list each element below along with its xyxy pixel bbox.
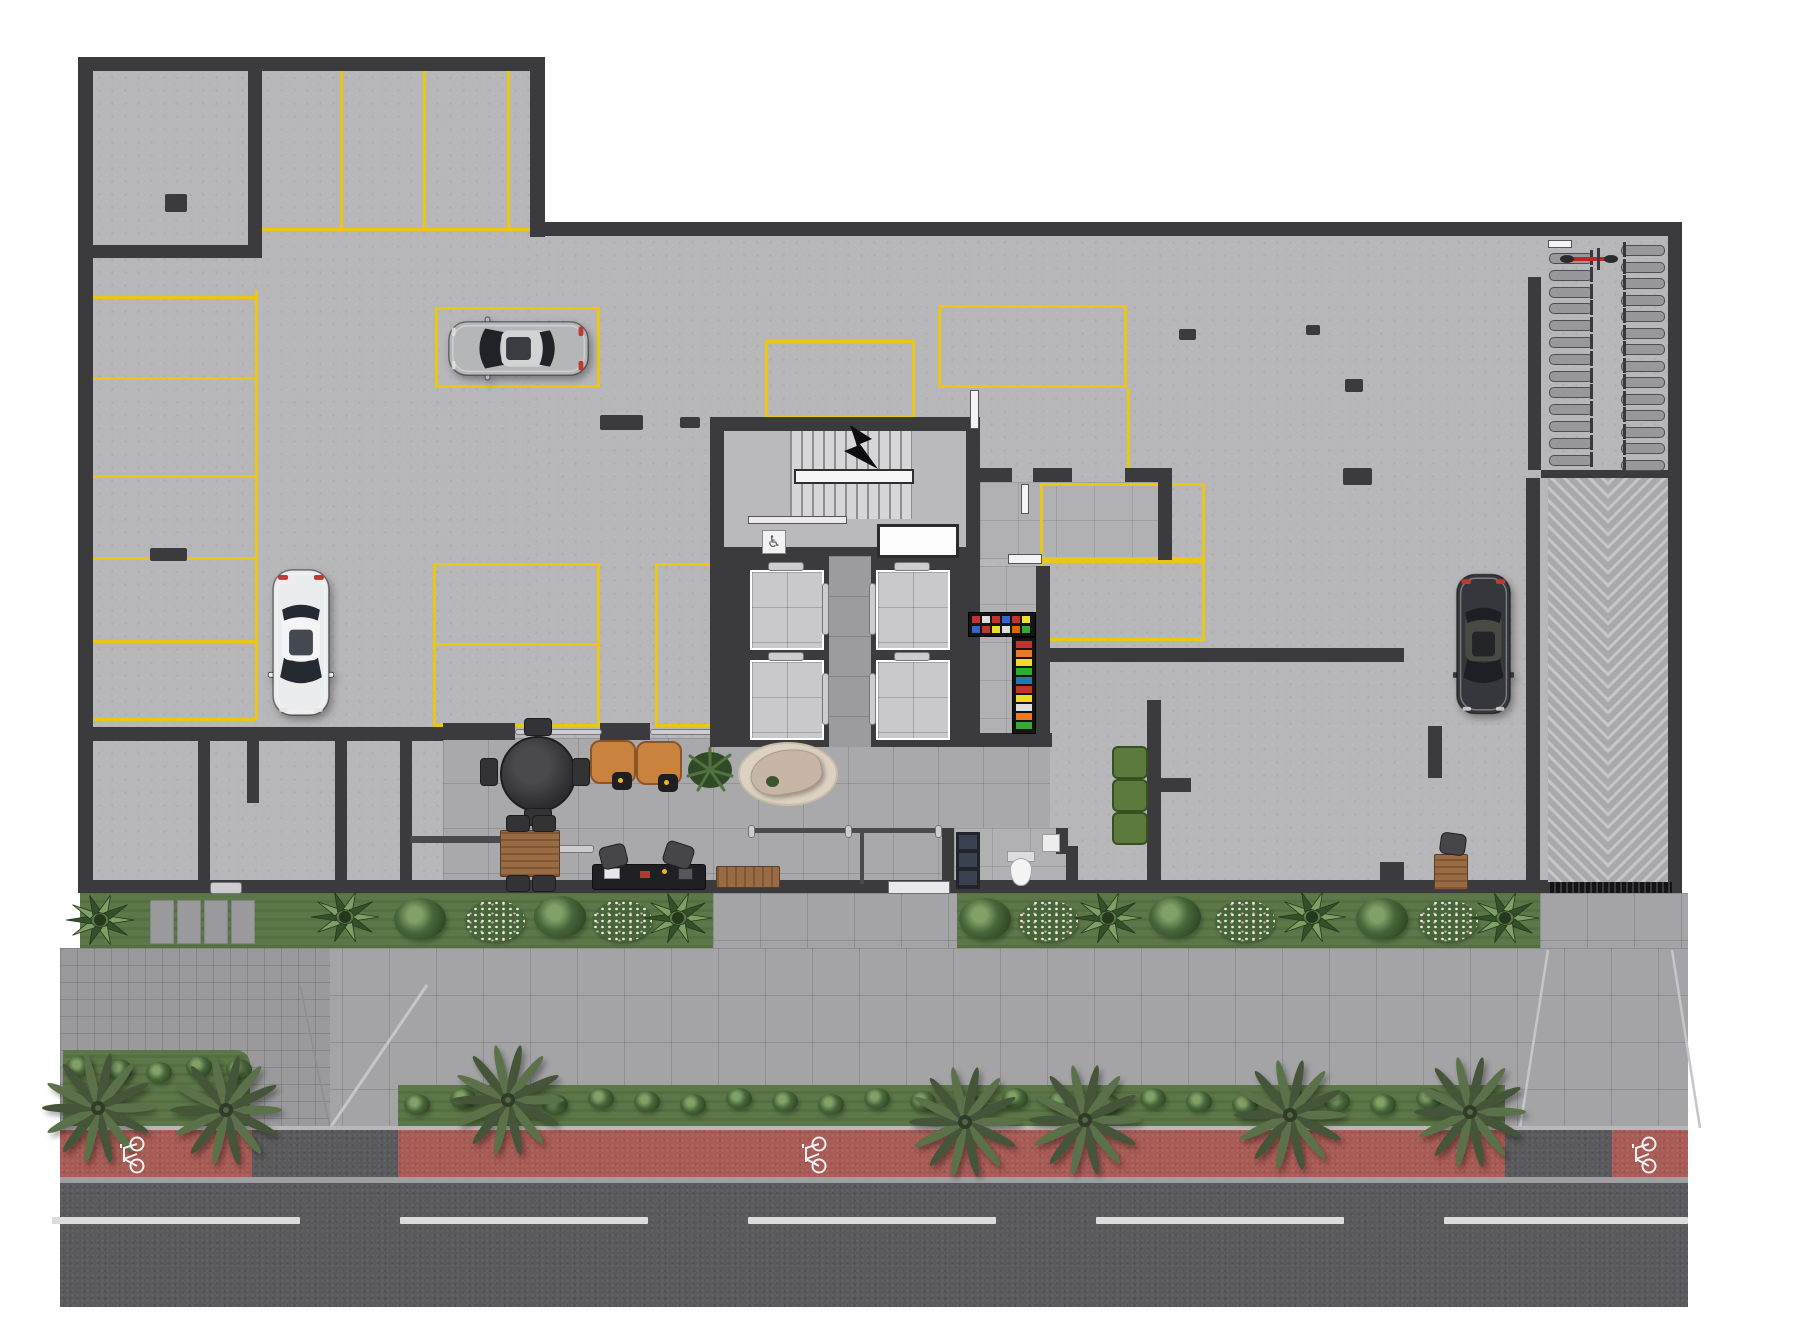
wall bbox=[443, 723, 515, 740]
vending-product bbox=[1016, 641, 1032, 648]
vending-product bbox=[1016, 659, 1032, 666]
ramp-apron bbox=[1540, 893, 1688, 948]
wall bbox=[93, 727, 443, 741]
wall bbox=[1158, 468, 1172, 560]
sofa-cushion bbox=[766, 776, 779, 787]
lane-dash bbox=[52, 1217, 300, 1224]
round-table bbox=[500, 736, 576, 812]
stall-line bbox=[93, 377, 256, 380]
flower-cluster bbox=[465, 900, 525, 942]
vending-machine-snacks bbox=[968, 612, 1036, 637]
core-door-opening bbox=[877, 524, 959, 558]
wall bbox=[248, 57, 262, 258]
bike-rack bbox=[1549, 421, 1595, 433]
agave-plant bbox=[1466, 886, 1544, 950]
vending-product bbox=[1002, 616, 1010, 623]
structural-column bbox=[1306, 325, 1320, 335]
wall bbox=[1033, 468, 1072, 482]
lane-dash bbox=[400, 1217, 648, 1224]
fern-shrub bbox=[959, 898, 1011, 940]
vending-product bbox=[982, 626, 990, 633]
wall bbox=[1380, 862, 1404, 893]
parking-ramp bbox=[1548, 478, 1668, 884]
vending-product bbox=[972, 616, 980, 623]
ramp-stripes-right bbox=[1608, 478, 1668, 884]
wall bbox=[1066, 846, 1078, 893]
bike-rack bbox=[1621, 394, 1667, 406]
vending-product bbox=[1022, 616, 1030, 623]
agave-plant bbox=[639, 886, 717, 950]
meeting-chair-1 bbox=[506, 815, 530, 832]
bike-lane-symbol bbox=[110, 1135, 150, 1175]
stall-line bbox=[507, 71, 510, 231]
stall-line bbox=[262, 228, 530, 231]
vestibule-post-2 bbox=[845, 825, 852, 838]
palm-tree bbox=[909, 1066, 1021, 1178]
paver-step bbox=[150, 900, 174, 944]
cab2-door-sill bbox=[822, 673, 829, 725]
wall bbox=[1428, 726, 1442, 778]
stall-box bbox=[765, 340, 915, 419]
bike-rack bbox=[1621, 245, 1667, 257]
vending-product bbox=[982, 616, 990, 623]
bike-rack bbox=[1549, 303, 1595, 315]
bike-rack bbox=[1549, 354, 1595, 366]
structural-column bbox=[150, 548, 187, 561]
paver-step bbox=[231, 900, 255, 944]
meeting-chair-2 bbox=[532, 815, 556, 832]
stall-box bbox=[938, 305, 1127, 388]
cab4-handrail bbox=[894, 652, 930, 661]
vending-product bbox=[1016, 650, 1032, 657]
wall bbox=[78, 57, 93, 893]
fern-shrub bbox=[534, 896, 586, 938]
wall bbox=[600, 723, 650, 740]
elevator-corridor-floor bbox=[829, 556, 871, 747]
bike-room-door bbox=[1548, 240, 1572, 248]
stall-line bbox=[255, 290, 258, 720]
stall-line bbox=[93, 296, 256, 299]
cab3-handrail bbox=[894, 562, 930, 571]
desk-item-red bbox=[640, 871, 650, 878]
agave-plant bbox=[1273, 885, 1351, 949]
door-leaf-service bbox=[1021, 484, 1029, 514]
entrance-walkway bbox=[713, 893, 957, 948]
wall bbox=[530, 222, 1682, 236]
wall bbox=[335, 741, 347, 881]
vending-product bbox=[1016, 686, 1032, 693]
entrance-sliding-door bbox=[888, 881, 950, 894]
bike-rack bbox=[1621, 295, 1667, 307]
palm-tree bbox=[1414, 1056, 1526, 1168]
elevator-cab-4 bbox=[876, 660, 950, 740]
agave-plant bbox=[306, 885, 384, 949]
structural-column bbox=[1528, 700, 1540, 725]
wall bbox=[1668, 222, 1682, 893]
bike-rack bbox=[1549, 387, 1595, 399]
stall-line bbox=[423, 71, 426, 231]
bike-rack bbox=[1621, 427, 1667, 439]
palm-tree bbox=[452, 1044, 564, 1156]
accessible-sign: ♿ bbox=[762, 530, 786, 554]
structural-column bbox=[600, 415, 643, 430]
core-block: ♿ bbox=[710, 417, 980, 747]
dark-suv bbox=[1453, 572, 1514, 716]
wc-shelving bbox=[956, 832, 980, 889]
round-table-chair-e bbox=[572, 758, 590, 786]
bike-lane-symbol bbox=[792, 1135, 832, 1175]
office-chair-right bbox=[1439, 831, 1468, 856]
wc-sink bbox=[1042, 834, 1060, 852]
paver-step bbox=[177, 900, 201, 944]
palm-tree bbox=[170, 1054, 282, 1166]
green-armchair-1 bbox=[1112, 746, 1148, 779]
bike-rack bbox=[1549, 438, 1595, 450]
palm-tree bbox=[1234, 1059, 1346, 1171]
cab1-door-sill bbox=[822, 583, 829, 635]
vending-product bbox=[972, 626, 980, 633]
shelf-cell-1 bbox=[959, 835, 977, 849]
stall-line bbox=[93, 718, 256, 721]
bike-rack bbox=[1621, 328, 1667, 340]
desk-item-laptop bbox=[678, 868, 693, 880]
wheelchair-icon: ♿ bbox=[767, 532, 781, 551]
wall bbox=[530, 57, 545, 237]
stair-handrail bbox=[794, 469, 914, 484]
wall bbox=[1048, 648, 1404, 662]
bike-rack bbox=[1549, 371, 1595, 383]
bike-rack bbox=[1621, 278, 1667, 290]
stall-line bbox=[1127, 388, 1130, 468]
agave-plant bbox=[1069, 886, 1147, 950]
vending-product bbox=[1002, 626, 1010, 633]
vending-product bbox=[1022, 626, 1030, 633]
street-roadway bbox=[60, 1183, 1688, 1307]
stall-box bbox=[433, 563, 600, 727]
structural-column bbox=[1179, 329, 1196, 340]
vending-product bbox=[992, 616, 1000, 623]
lane-dash bbox=[1444, 1217, 1688, 1224]
wall bbox=[78, 245, 262, 258]
palm-tree bbox=[1029, 1064, 1141, 1176]
bike-rack bbox=[1549, 270, 1595, 282]
door-leaf-corridor bbox=[1008, 554, 1042, 564]
wall bbox=[78, 57, 545, 71]
storage-gate bbox=[210, 882, 242, 894]
table-lamp-dot-2 bbox=[664, 780, 669, 785]
green-armchair-2 bbox=[1112, 779, 1148, 812]
elevator-cab-2 bbox=[750, 660, 824, 740]
lane-dash bbox=[1096, 1217, 1344, 1224]
bike-rack bbox=[1621, 311, 1667, 323]
meeting-table bbox=[500, 830, 560, 877]
ramp-stripes-left bbox=[1548, 478, 1608, 884]
white-sedan bbox=[268, 568, 334, 717]
bike-rack bbox=[1621, 410, 1667, 422]
vestibule-mullion bbox=[860, 833, 864, 884]
wall bbox=[1526, 478, 1540, 893]
stair-lower-rail bbox=[748, 516, 847, 524]
stall-line bbox=[93, 475, 256, 478]
vending-product bbox=[1012, 616, 1020, 623]
desk-item-lamp bbox=[662, 869, 667, 874]
round-table-chair-n bbox=[524, 718, 552, 736]
green-armchair-3 bbox=[1112, 812, 1148, 845]
elevator-cab-3 bbox=[876, 570, 950, 650]
vending-product bbox=[992, 626, 1000, 633]
vending-product bbox=[1016, 695, 1032, 702]
bike-rack bbox=[1549, 287, 1595, 299]
wall bbox=[247, 741, 259, 803]
bike-rack bbox=[1621, 443, 1667, 455]
vending-product bbox=[1016, 713, 1032, 720]
vending-product bbox=[1012, 626, 1020, 633]
vestibule-post-3 bbox=[935, 825, 942, 838]
structural-column bbox=[1528, 548, 1540, 575]
wall bbox=[1161, 778, 1191, 792]
structural-column bbox=[680, 417, 700, 428]
wall bbox=[198, 741, 210, 881]
cab2-handrail bbox=[768, 652, 804, 661]
wall bbox=[1528, 277, 1541, 470]
vending-product bbox=[1016, 668, 1032, 675]
vending-product bbox=[1016, 722, 1032, 729]
stall-line bbox=[93, 640, 256, 643]
vending-machine-drinks bbox=[1012, 637, 1036, 734]
cab1-handrail bbox=[768, 562, 804, 571]
bike-rack bbox=[1621, 344, 1667, 356]
floor-plan-canvas: ♿ bbox=[0, 0, 1795, 1341]
wall bbox=[400, 741, 412, 881]
stall-box bbox=[1040, 560, 1205, 641]
meeting-chair-4 bbox=[532, 875, 556, 892]
elevator-cab-1 bbox=[750, 570, 824, 650]
table-lamp-dot-1 bbox=[618, 778, 623, 783]
structural-column bbox=[1345, 379, 1363, 392]
red-bicycle-wheel-2 bbox=[1604, 255, 1618, 263]
lobby-plant bbox=[684, 746, 736, 794]
lane-dash bbox=[748, 1217, 996, 1224]
ramp-drain-grill bbox=[1548, 882, 1672, 893]
bike-rack bbox=[1621, 377, 1667, 389]
vestibule-glass-wall bbox=[748, 828, 940, 833]
cab3-door-sill bbox=[869, 583, 876, 635]
stair-break-icon bbox=[838, 425, 878, 471]
bike-rack bbox=[1621, 262, 1667, 274]
door-leaf-garage bbox=[970, 390, 979, 429]
bike-rack bbox=[1549, 337, 1595, 349]
flower-cluster bbox=[1215, 900, 1275, 942]
vending-product bbox=[1016, 704, 1032, 711]
shelf-cell-2 bbox=[959, 853, 977, 867]
bike-rack bbox=[1549, 404, 1595, 416]
bike-rack bbox=[1621, 460, 1667, 472]
cab4-door-sill bbox=[869, 673, 876, 725]
stall-box bbox=[1040, 483, 1205, 560]
entry-bench bbox=[716, 866, 780, 888]
structural-column bbox=[165, 194, 187, 212]
bike-lane-symbol bbox=[1622, 1135, 1662, 1175]
agave-plant bbox=[61, 888, 139, 952]
structural-column bbox=[1343, 468, 1372, 485]
bike-rack bbox=[1621, 361, 1667, 373]
office-desk-right bbox=[1434, 854, 1468, 890]
red-bicycle-handlebar bbox=[1597, 248, 1600, 270]
round-table-chair-w bbox=[480, 758, 498, 786]
vending-product bbox=[1016, 677, 1032, 684]
shelf-cell-3 bbox=[959, 871, 977, 885]
paver-step bbox=[204, 900, 228, 944]
stall-line bbox=[340, 71, 343, 231]
fern-shrub bbox=[1149, 896, 1201, 938]
bike-rack bbox=[1549, 455, 1595, 467]
vestibule-post-1 bbox=[748, 825, 755, 838]
fern-shrub bbox=[394, 898, 446, 940]
silver-suv bbox=[447, 315, 590, 382]
fern-shrub bbox=[1356, 898, 1408, 940]
red-bicycle-wheel-1 bbox=[1560, 255, 1574, 263]
meeting-chair-3 bbox=[506, 875, 530, 892]
wall bbox=[1147, 700, 1161, 880]
bike-rack bbox=[1549, 320, 1595, 332]
